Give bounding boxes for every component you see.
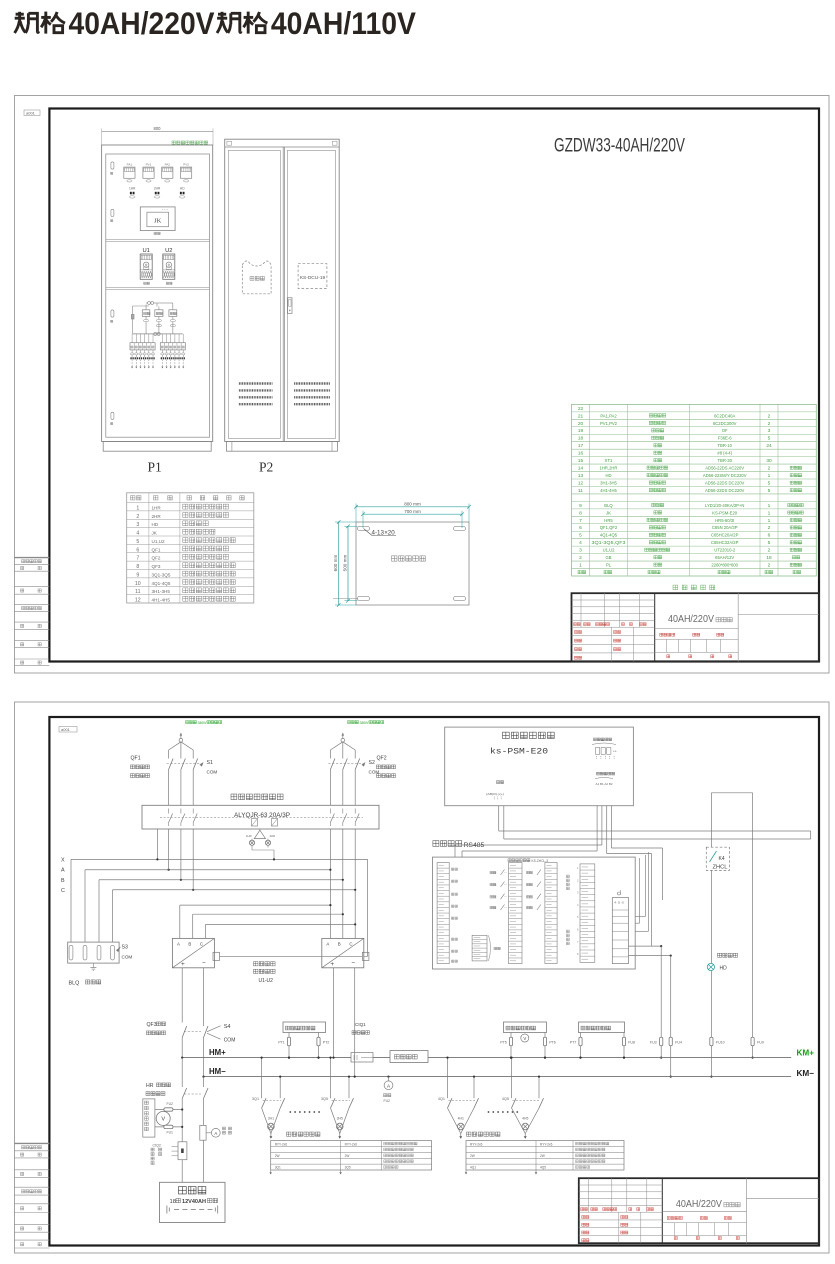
svg-text:(AB)R(-)(+): (AB)R(-)(+) bbox=[486, 792, 504, 796]
svg-text:2HR: 2HR bbox=[152, 514, 162, 519]
svg-text:HM+: HM+ bbox=[209, 1048, 226, 1057]
svg-text:1: 1 bbox=[768, 518, 771, 524]
svg-text:KS-PSM-E20: KS-PSM-E20 bbox=[712, 510, 738, 515]
svg-text:10: 10 bbox=[135, 581, 141, 587]
svg-text:6C2DC300V: 6C2DC300V bbox=[713, 421, 737, 426]
svg-text:S2: S2 bbox=[369, 760, 375, 766]
svg-text:A: A bbox=[177, 942, 180, 947]
svg-text:1: 1 bbox=[577, 866, 579, 870]
svg-text:QF3: QF3 bbox=[152, 564, 161, 569]
svg-text:22: 22 bbox=[578, 406, 584, 412]
svg-text:5: 5 bbox=[768, 540, 771, 546]
svg-text:AD56-22DS DC220V: AD56-22DS DC220V bbox=[705, 480, 745, 485]
svg-text:C: C bbox=[61, 888, 65, 894]
svg-text:2: 2 bbox=[768, 413, 771, 419]
svg-text:2: 2 bbox=[579, 555, 582, 561]
svg-text:UT22010-2: UT22010-2 bbox=[714, 548, 736, 553]
svg-text:13: 13 bbox=[578, 473, 584, 479]
svg-text:FU4: FU4 bbox=[675, 1040, 682, 1044]
svg-text:FU10: FU10 bbox=[716, 1040, 725, 1044]
svg-text:V: V bbox=[523, 1036, 526, 1041]
svg-text:3H1-3H5: 3H1-3H5 bbox=[152, 589, 171, 594]
svg-text:5: 5 bbox=[768, 480, 771, 486]
svg-text:F36E-6: F36E-6 bbox=[718, 436, 732, 441]
svg-text:5: 5 bbox=[136, 539, 139, 545]
svg-text:KM−: KM− bbox=[797, 1069, 815, 1078]
svg-text:6C2DC40A: 6C2DC40A bbox=[714, 413, 735, 418]
svg-text:40AH/110V: 40AH/110V bbox=[271, 5, 416, 41]
svg-text:QF2: QF2 bbox=[152, 556, 161, 561]
svg-text:3Q1-3Q5,QF3: 3Q1-3Q5,QF3 bbox=[592, 540, 627, 545]
svg-text:AD56-22DS AC220V: AD56-22DS AC220V bbox=[705, 466, 744, 471]
svg-text:PA2: PA2 bbox=[165, 163, 171, 167]
svg-text:3: 3 bbox=[579, 548, 582, 554]
svg-text:C65N 20A/3P: C65N 20A/3P bbox=[712, 525, 738, 530]
svg-text:COM: COM bbox=[207, 769, 218, 774]
svg-text:KS-DCU-19: KS-DCU-19 bbox=[300, 275, 326, 281]
svg-text:1HR: 1HR bbox=[152, 505, 162, 510]
svg-text:6: 6 bbox=[768, 533, 771, 539]
svg-text:11: 11 bbox=[578, 488, 583, 494]
svg-text:ZHCL: ZHCL bbox=[713, 865, 728, 871]
svg-text:4: 4 bbox=[577, 903, 579, 907]
svg-text:1: 1 bbox=[136, 505, 139, 511]
svg-text:8: 8 bbox=[136, 564, 139, 570]
svg-text:40AH/220V: 40AH/220V bbox=[676, 1199, 722, 1210]
svg-text:FU8: FU8 bbox=[628, 1040, 635, 1044]
svg-text:S1: S1 bbox=[207, 760, 213, 766]
svg-text:6: 6 bbox=[577, 928, 579, 932]
svg-text:9: 9 bbox=[136, 572, 139, 578]
svg-text:−: − bbox=[202, 960, 206, 967]
svg-text:6: 6 bbox=[579, 525, 582, 531]
svg-text:7: 7 bbox=[136, 556, 139, 562]
svg-text:19: 19 bbox=[578, 428, 584, 434]
svg-text:P1: P1 bbox=[148, 460, 162, 475]
svg-text:HR5: HR5 bbox=[604, 518, 613, 523]
svg-text:4Q1-4Q5: 4Q1-4Q5 bbox=[152, 581, 171, 586]
svg-text:2: 2 bbox=[768, 548, 771, 554]
svg-text:7: 7 bbox=[579, 518, 582, 524]
svg-text:40AH/220V: 40AH/220V bbox=[69, 5, 215, 41]
svg-text:a001: a001 bbox=[26, 110, 36, 115]
svg-text:U2: U2 bbox=[165, 248, 172, 254]
svg-text:700 mm: 700 mm bbox=[404, 509, 421, 514]
svg-text:FU2: FU2 bbox=[167, 1102, 174, 1106]
svg-text:4Q1: 4Q1 bbox=[470, 1166, 476, 1170]
svg-text:18: 18 bbox=[766, 555, 772, 561]
svg-text:A: A bbox=[214, 1131, 217, 1136]
svg-text:C: C bbox=[200, 942, 203, 947]
svg-text:600 mm: 600 mm bbox=[333, 555, 338, 572]
svg-text:1: 1 bbox=[768, 510, 771, 516]
svg-text:1HR,2HR: 1HR,2HR bbox=[600, 466, 618, 471]
svg-text:8: 8 bbox=[577, 952, 579, 956]
svg-text:KM+: KM+ bbox=[797, 1049, 815, 1058]
svg-text:3: 3 bbox=[577, 891, 579, 895]
svg-text:PA1: PA1 bbox=[127, 163, 133, 167]
svg-text:1: 1 bbox=[768, 473, 771, 479]
svg-text:CtQ2: CtQ2 bbox=[153, 1144, 161, 1148]
svg-text:X: X bbox=[61, 857, 65, 863]
svg-text:QF1,QF2: QF1,QF2 bbox=[600, 525, 618, 530]
svg-text:+: + bbox=[330, 961, 334, 968]
svg-text:3H1: 3H1 bbox=[268, 1117, 274, 1121]
svg-text:HD: HD bbox=[152, 522, 159, 527]
svg-text:A: A bbox=[61, 868, 65, 874]
svg-text:15: 15 bbox=[578, 458, 584, 464]
svg-text:+: + bbox=[181, 961, 185, 968]
svg-text:K4: K4 bbox=[719, 856, 725, 862]
svg-text:3Q1-3Q5: 3Q1-3Q5 bbox=[152, 572, 171, 577]
svg-text:4: 4 bbox=[136, 531, 139, 537]
svg-text:U1: U1 bbox=[142, 248, 149, 254]
svg-text:BLQ: BLQ bbox=[604, 503, 613, 508]
svg-text:4H1-4H5: 4H1-4H5 bbox=[600, 488, 617, 493]
svg-text:U1,U2: U1,U2 bbox=[603, 548, 616, 553]
svg-text:12V40AH: 12V40AH bbox=[182, 1199, 206, 1205]
svg-text:RYY-2x6: RYY-2x6 bbox=[345, 1142, 358, 1146]
svg-text:C65HC20A/2P: C65HC20A/2P bbox=[711, 533, 739, 538]
svg-text:AD56-22SM/Y DC220V: AD56-22SM/Y DC220V bbox=[703, 473, 747, 478]
svg-text:65AH/12V: 65AH/12V bbox=[715, 555, 734, 560]
svg-text:3: 3 bbox=[136, 522, 139, 528]
svg-text:2: 2 bbox=[768, 466, 771, 472]
svg-text:S3: S3 bbox=[122, 945, 128, 951]
svg-text:XT1: XT1 bbox=[605, 458, 613, 463]
svg-text:#8 (4-4): #8 (4-4) bbox=[717, 451, 732, 456]
svg-text:COM: COM bbox=[224, 1038, 236, 1044]
svg-text:4Q5: 4Q5 bbox=[502, 1097, 509, 1101]
svg-text:C: C bbox=[349, 942, 352, 947]
svg-text:LYD1/20-40KA/3P+N: LYD1/20-40KA/3P+N bbox=[705, 503, 744, 508]
svg-text:4Q1: 4Q1 bbox=[438, 1097, 445, 1101]
svg-text:2HR: 2HR bbox=[270, 834, 276, 838]
svg-text:PT5: PT5 bbox=[500, 1040, 507, 1044]
svg-text:FU1: FU1 bbox=[167, 1131, 174, 1135]
svg-text:2: 2 bbox=[768, 563, 771, 569]
svg-text:2W: 2W bbox=[470, 1154, 475, 1158]
svg-text:2W: 2W bbox=[345, 1154, 350, 1158]
svg-text:−: − bbox=[351, 960, 355, 967]
svg-text:3Q5: 3Q5 bbox=[321, 1097, 328, 1101]
svg-text:3H5: 3H5 bbox=[337, 1117, 343, 1121]
svg-text:21: 21 bbox=[578, 413, 584, 419]
svg-text:PV1,PV2: PV1,PV2 bbox=[600, 421, 618, 426]
svg-text:PT1: PT1 bbox=[278, 1040, 285, 1044]
svg-text:GZDW33-40AH/220V: GZDW33-40AH/220V bbox=[554, 136, 685, 157]
svg-text:PA1,PA2: PA1,PA2 bbox=[600, 413, 617, 418]
svg-text:2: 2 bbox=[768, 421, 771, 427]
svg-text:V: V bbox=[161, 1117, 165, 1123]
svg-text:PT6: PT6 bbox=[549, 1040, 556, 1044]
svg-text:40AH/220V: 40AH/220V bbox=[668, 614, 714, 625]
svg-text:11: 11 bbox=[135, 589, 140, 595]
svg-text:5: 5 bbox=[577, 915, 579, 919]
svg-text:800: 800 bbox=[154, 126, 162, 131]
svg-text:C65HC32A/2P: C65HC32A/2P bbox=[711, 540, 739, 545]
svg-text:380V: 380V bbox=[360, 721, 369, 725]
svg-text:FU3: FU3 bbox=[650, 1040, 657, 1044]
svg-text:OF: OF bbox=[722, 428, 728, 433]
svg-text:GB: GB bbox=[605, 555, 611, 560]
svg-text:JK: JK bbox=[606, 510, 611, 515]
svg-text:QF1: QF1 bbox=[152, 547, 161, 552]
svg-text:6: 6 bbox=[136, 547, 139, 553]
svg-text:AD56-22DS DC220V: AD56-22DS DC220V bbox=[705, 488, 745, 493]
svg-text:PT2: PT2 bbox=[323, 1040, 330, 1044]
svg-text:2260*800*600: 2260*800*600 bbox=[711, 563, 738, 568]
svg-text:COM: COM bbox=[122, 955, 133, 960]
svg-text:4Q5: 4Q5 bbox=[540, 1166, 546, 1170]
svg-text:4H5: 4H5 bbox=[522, 1117, 528, 1121]
svg-text:QF2: QF2 bbox=[377, 756, 387, 762]
svg-text:1HR: 1HR bbox=[129, 186, 136, 190]
svg-text:HM−: HM− bbox=[209, 1067, 226, 1076]
svg-text:PV1: PV1 bbox=[146, 163, 152, 167]
svg-text:16: 16 bbox=[578, 451, 584, 457]
svg-text:B: B bbox=[188, 942, 191, 947]
svg-text:1HR: 1HR bbox=[246, 834, 252, 838]
svg-text:PL: PL bbox=[606, 563, 612, 568]
svg-text:1: 1 bbox=[579, 563, 582, 569]
svg-text:2W: 2W bbox=[540, 1154, 545, 1158]
svg-text:BLQ: BLQ bbox=[69, 980, 80, 986]
svg-text:TBR-30: TBR-30 bbox=[717, 458, 732, 463]
svg-text:500 mm: 500 mm bbox=[342, 555, 347, 572]
svg-text:3H1-3H5: 3H1-3H5 bbox=[600, 480, 617, 485]
svg-text:A: A bbox=[387, 1083, 391, 1088]
svg-text:1: 1 bbox=[768, 503, 771, 509]
svg-text:a001: a001 bbox=[61, 727, 71, 732]
svg-text:14: 14 bbox=[578, 466, 584, 472]
svg-text:×20: ×20 bbox=[384, 529, 395, 536]
svg-text:2: 2 bbox=[577, 878, 579, 882]
svg-text:A1 B1 A2 B2: A1 B1 A2 B2 bbox=[596, 782, 614, 786]
svg-text:RYY-2x6: RYY-2x6 bbox=[540, 1142, 553, 1146]
svg-text:2W: 2W bbox=[275, 1154, 280, 1158]
svg-text:3Q1: 3Q1 bbox=[275, 1166, 281, 1170]
svg-text:4 5 6: 4 5 6 bbox=[614, 902, 625, 905]
svg-text:PV2: PV2 bbox=[183, 163, 189, 167]
svg-text:12: 12 bbox=[135, 598, 141, 604]
svg-text:18: 18 bbox=[170, 1199, 176, 1205]
svg-text:U1-U2: U1-U2 bbox=[259, 978, 274, 984]
svg-text:RYY-2x6: RYY-2x6 bbox=[470, 1142, 483, 1146]
svg-text:5: 5 bbox=[579, 533, 582, 539]
svg-text:2: 2 bbox=[136, 514, 139, 520]
svg-text:QF3: QF3 bbox=[147, 1022, 157, 1028]
svg-text:B: B bbox=[61, 878, 65, 884]
svg-text:ks-PSM-E20: ks-PSM-E20 bbox=[490, 748, 548, 757]
svg-text:TBR-10: TBR-10 bbox=[717, 443, 732, 448]
svg-text:CtQ1: CtQ1 bbox=[355, 1022, 366, 1027]
svg-text:4H1: 4H1 bbox=[458, 1117, 464, 1121]
svg-text:++: ++ bbox=[613, 750, 617, 754]
svg-text:30: 30 bbox=[766, 458, 772, 464]
svg-text:JK: JK bbox=[154, 217, 162, 224]
svg-text:24: 24 bbox=[766, 443, 772, 449]
svg-text:18: 18 bbox=[578, 436, 584, 442]
svg-text:20: 20 bbox=[578, 421, 584, 427]
svg-text:S4: S4 bbox=[224, 1024, 231, 1030]
svg-text:3Q1: 3Q1 bbox=[252, 1097, 259, 1101]
svg-text:P2: P2 bbox=[259, 460, 273, 475]
svg-text:QF1: QF1 bbox=[131, 756, 141, 762]
svg-text:4-13: 4-13 bbox=[372, 529, 385, 536]
svg-text:2HR: 2HR bbox=[154, 186, 161, 190]
svg-text:RYY-2x6: RYY-2x6 bbox=[275, 1142, 288, 1146]
svg-text:HD: HD bbox=[180, 186, 185, 190]
svg-text:HD: HD bbox=[720, 965, 728, 971]
svg-text:3: 3 bbox=[768, 428, 771, 434]
svg-text:2: 2 bbox=[768, 525, 771, 531]
svg-text:3Q5: 3Q5 bbox=[345, 1166, 351, 1170]
svg-text:U1,U2: U1,U2 bbox=[152, 539, 165, 544]
svg-text:4Q1-4Q5: 4Q1-4Q5 bbox=[600, 533, 618, 538]
svg-text:FU2: FU2 bbox=[384, 1099, 391, 1103]
svg-text:17: 17 bbox=[578, 443, 584, 449]
svg-text:JK: JK bbox=[152, 531, 158, 536]
svg-text:800 mm: 800 mm bbox=[404, 501, 421, 506]
svg-text:8: 8 bbox=[579, 510, 582, 516]
svg-text:HR: HR bbox=[146, 1083, 154, 1089]
svg-text:A: A bbox=[326, 942, 329, 947]
svg-text:7: 7 bbox=[577, 940, 579, 944]
svg-text:HR5-60/3I: HR5-60/3I bbox=[715, 518, 734, 523]
svg-text:B: B bbox=[338, 942, 341, 947]
svg-text:5: 5 bbox=[768, 488, 771, 494]
svg-text:9: 9 bbox=[579, 503, 582, 509]
svg-text:12: 12 bbox=[578, 480, 584, 486]
svg-text:HD: HD bbox=[605, 473, 611, 478]
svg-text:PT7: PT7 bbox=[570, 1040, 577, 1044]
svg-text:5: 5 bbox=[768, 436, 771, 442]
svg-text:4H1-4H5: 4H1-4H5 bbox=[152, 598, 171, 603]
svg-text:FU9: FU9 bbox=[757, 1040, 764, 1044]
svg-text:4: 4 bbox=[579, 540, 582, 546]
svg-text:380V: 380V bbox=[198, 721, 207, 725]
